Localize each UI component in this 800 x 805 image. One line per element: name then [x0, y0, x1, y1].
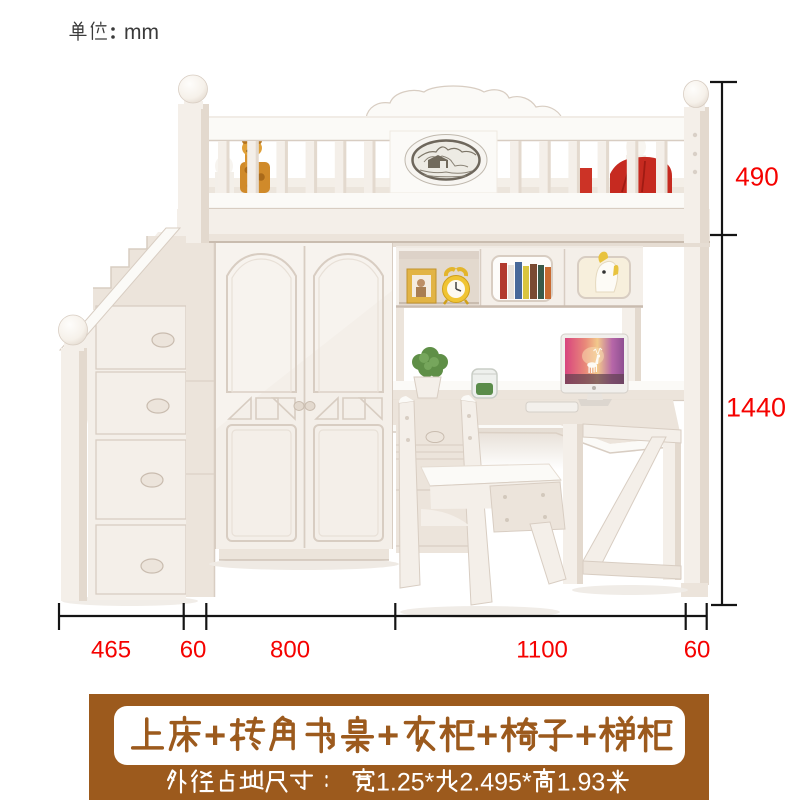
svg-text:60: 60	[180, 637, 207, 664]
svg-text:+: +	[575, 715, 597, 757]
svg-text:+: +	[377, 715, 399, 757]
svg-text:800: 800	[270, 637, 310, 664]
svg-text:465: 465	[91, 637, 131, 664]
svg-text:1100: 1100	[516, 637, 568, 664]
svg-text:1.93: 1.93	[557, 769, 606, 797]
svg-text:1.25*: 1.25*	[376, 769, 435, 797]
svg-text:60: 60	[684, 637, 711, 664]
svg-text:1440: 1440	[726, 393, 786, 423]
svg-text:2.495*: 2.495*	[459, 769, 532, 797]
svg-text:mm: mm	[124, 21, 159, 44]
svg-text:+: +	[476, 715, 498, 757]
svg-text:490: 490	[735, 161, 778, 191]
svg-text:+: +	[204, 715, 226, 757]
